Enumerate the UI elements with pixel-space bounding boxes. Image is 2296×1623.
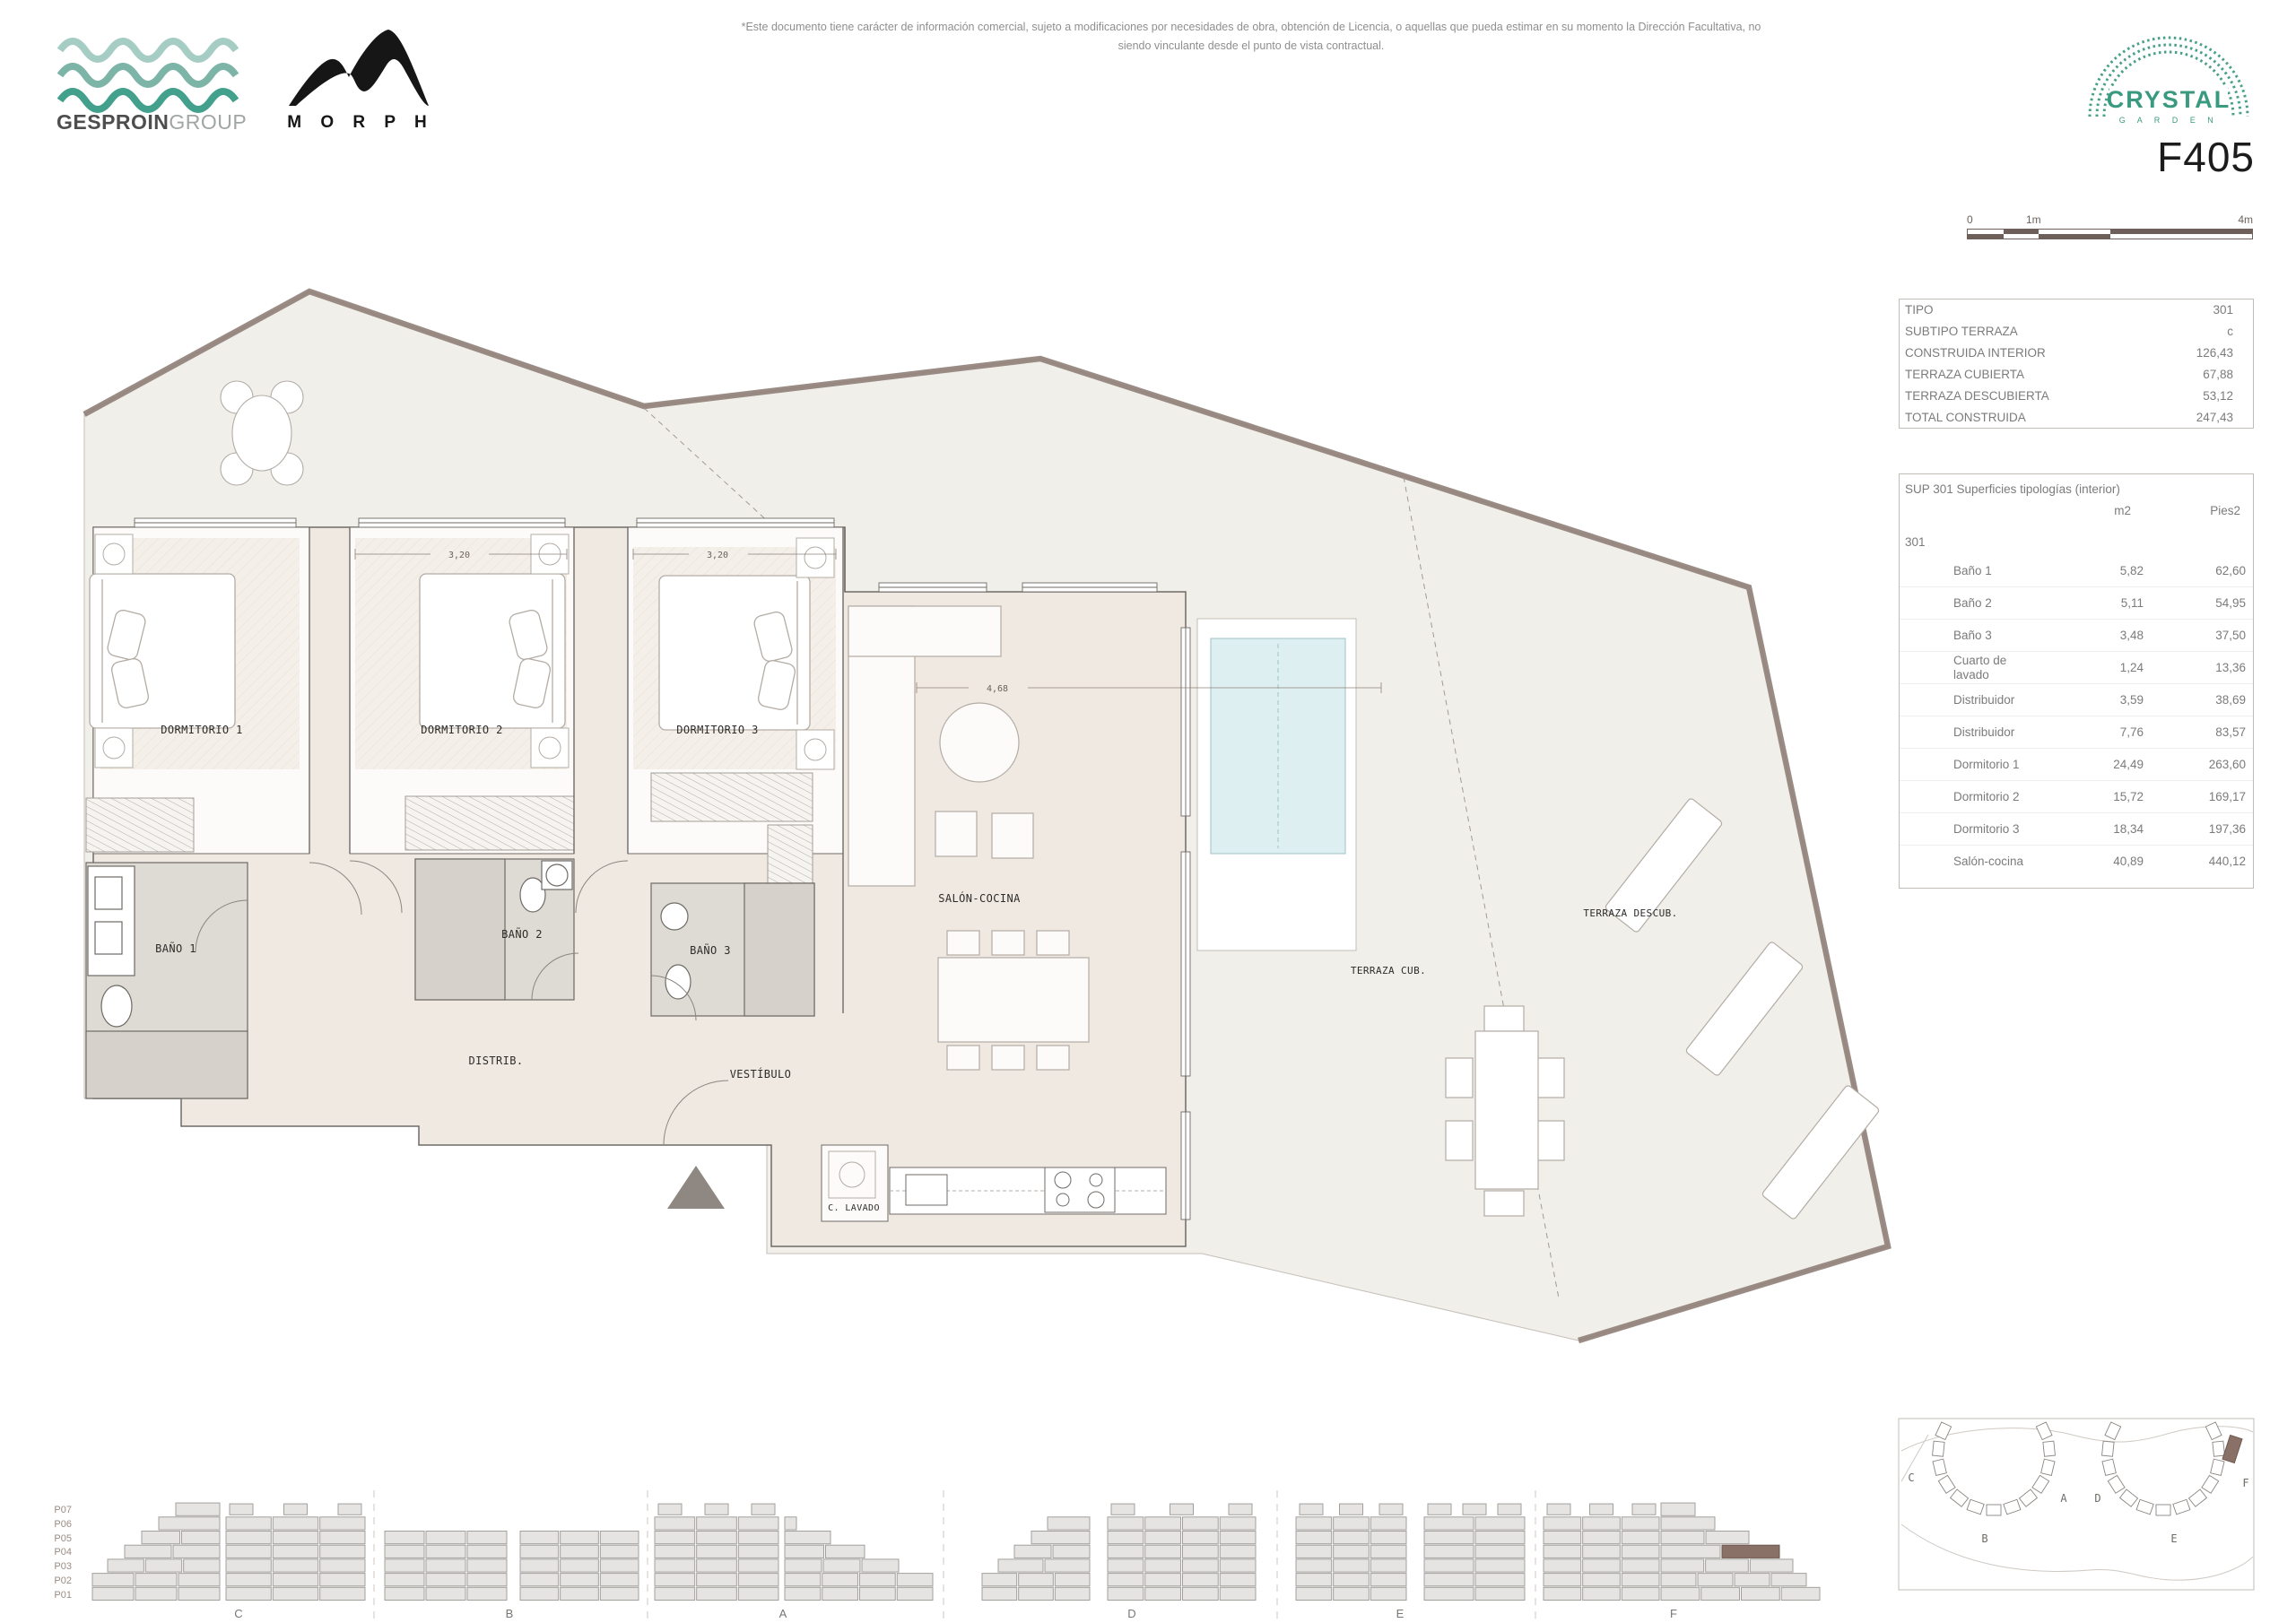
outdoor-table — [1475, 1031, 1538, 1189]
floor-label: P01 — [54, 1590, 72, 1601]
table-row: Cuarto de lavado1,2413,36 — [1900, 652, 2253, 684]
scale-label-0: 0 — [1967, 213, 1973, 226]
gesproin-wordmark: GESPROINGROUP — [57, 110, 247, 134]
round-rug — [940, 703, 1019, 782]
table-row: TIPO301 — [1900, 299, 2253, 321]
kitchen-sink-icon — [906, 1175, 947, 1205]
room-label-dormitorio-1: DORMITORIO 1 — [161, 724, 243, 736]
gesproin-wave-light — [60, 41, 236, 59]
nightstand — [531, 728, 569, 768]
table-row: TERRAZA CUBIERTA67,88 — [1900, 364, 2253, 386]
site-label-E: E — [2170, 1532, 2177, 1545]
chair — [947, 931, 979, 955]
gesproin-logo: GESPROINGROUP — [49, 16, 265, 135]
morph-logo: M O R P H — [280, 16, 441, 135]
table-row: Distribuidor7,7683,57 — [1900, 716, 2253, 749]
crystal-sub-wordmark: G A R D E N — [2119, 116, 2219, 125]
chair — [947, 1046, 979, 1070]
site-label-F: F — [2242, 1477, 2248, 1489]
table-row: Dormitorio 215,72169,17 — [1900, 781, 2253, 813]
building-elevations: P07 P06 P05 P04 P03 P02 P01 C B A D E F — [27, 1484, 1848, 1620]
scale-bar-graphic — [1967, 229, 2253, 239]
table-row: Dormitorio 318,34197,36 — [1900, 813, 2253, 846]
chair — [1537, 1121, 1564, 1160]
floor-plan: 3,20 3,20 4,68 DORMITORIO 1 DORMITORIO 2… — [36, 269, 1919, 1394]
dining-table — [938, 958, 1089, 1042]
table-row: Distribuidor3,5938,69 — [1900, 684, 2253, 716]
shower-bano-1 — [86, 1031, 248, 1098]
chair — [992, 1046, 1024, 1070]
wardrobe-dormitorio-1 — [86, 798, 194, 852]
table-row: CONSTRUIDA INTERIOR126,43 — [1900, 343, 2253, 364]
dimension-label: 4,68 — [987, 684, 1008, 694]
surfaces-table: SUP 301 Superficies tipologías (interior… — [1899, 473, 2254, 889]
table-row: Baño 15,8262,60 — [1900, 555, 2253, 587]
shower-bano-3 — [744, 883, 814, 1016]
entrance-arrow-icon — [667, 1166, 725, 1209]
pouf — [992, 813, 1033, 858]
room-label-dormitorio-2: DORMITORIO 2 — [421, 724, 503, 736]
gesproin-wave-mid — [60, 66, 236, 84]
elevation-blocks — [92, 1503, 1820, 1600]
room-label-dormitorio-3: DORMITORIO 3 — [676, 724, 759, 736]
table-row: Baño 33,4837,50 — [1900, 620, 2253, 652]
nightstand — [95, 534, 133, 574]
surfaces-header: m2 Pies2 — [1900, 498, 2253, 525]
label-terraza-cub: TERRAZA CUB. — [1351, 965, 1426, 976]
chair — [1446, 1058, 1473, 1098]
sink-icon — [661, 903, 688, 930]
chair — [1537, 1058, 1564, 1098]
morph-mountain-icon — [289, 30, 429, 106]
room-label-bano-1: BAÑO 1 — [155, 942, 196, 955]
col-pies2: Pies2 — [2147, 498, 2246, 525]
room-label-bano-3: BAÑO 3 — [690, 943, 731, 957]
room-label-bano-2: BAÑO 2 — [501, 927, 543, 941]
scale-label-4m: 4m — [2238, 213, 2253, 226]
hob-icon — [1045, 1167, 1115, 1212]
building-label-A: A — [779, 1607, 787, 1620]
summary-table: TIPO301 SUBTIPO TERRAZAc CONSTRUIDA INTE… — [1899, 299, 2254, 429]
chair — [1484, 1006, 1524, 1031]
dimension-label: 3,20 — [448, 551, 470, 560]
site-plan-frame — [1899, 1419, 2254, 1590]
site-label-C: C — [1908, 1471, 1914, 1484]
label-terraza-descub: TERRAZA DESCUB. — [1583, 907, 1677, 919]
morph-wordmark: M O R P H — [287, 113, 434, 132]
crystal-wordmark: CRYSTAL — [2107, 86, 2231, 113]
disclaimer-line2: siendo vinculante desde el punto de vist… — [628, 37, 1874, 56]
room-label-salon: SALÓN-COCINA — [938, 891, 1021, 905]
chair — [1037, 1046, 1069, 1070]
chair — [1037, 931, 1069, 955]
crystal-garden-logo: CRYSTAL G A R D E N — [2079, 11, 2258, 145]
surfaces-group: 301 — [1900, 525, 2253, 555]
building-label-B: B — [506, 1607, 514, 1620]
gesproin-wave-dark — [60, 91, 236, 109]
pouf — [935, 811, 977, 856]
scale-label-1m: 1m — [2026, 213, 2041, 226]
table-row: Baño 25,1154,95 — [1900, 587, 2253, 620]
surfaces-title: SUP 301 Superficies tipologías (interior… — [1900, 474, 2253, 498]
toilet-icon — [101, 985, 132, 1027]
floor-label: P03 — [54, 1561, 72, 1572]
building-label-C: C — [234, 1607, 242, 1620]
terrace-round-table — [232, 395, 291, 471]
building-label-E: E — [1396, 1607, 1405, 1620]
room-label-distribuidor: DISTRIB. — [469, 1055, 524, 1067]
wardrobe-dormitorio-3 — [651, 773, 813, 821]
disclaimer: *Este documento tiene carácter de inform… — [628, 18, 1874, 56]
chair — [1446, 1121, 1473, 1160]
disclaimer-line1: *Este documento tiene carácter de inform… — [628, 18, 1874, 37]
table-row: TERRAZA DESCUBIERTA53,12 — [1900, 386, 2253, 407]
floor-label: P06 — [54, 1519, 72, 1530]
floor-label: P04 — [54, 1547, 72, 1558]
col-m2: m2 — [2071, 498, 2147, 525]
site-plan: C B A D E F — [1894, 1415, 2257, 1594]
shower-bano-2 — [415, 859, 505, 1000]
dimension-label: 3,20 — [707, 551, 728, 560]
nightstand — [796, 538, 834, 577]
room-label-lavado: C. LAVADO — [828, 1203, 880, 1213]
floor-label: P07 — [54, 1505, 72, 1515]
table-row: TOTAL CONSTRUIDA247,43 — [1900, 407, 2253, 429]
table-row: Dormitorio 124,49263,60 — [1900, 749, 2253, 781]
chair — [992, 931, 1024, 955]
building-label-D: D — [1127, 1607, 1135, 1620]
chair — [1484, 1191, 1524, 1216]
sink-icon — [546, 864, 568, 886]
unit-code: F405 — [2054, 133, 2255, 181]
scale-bar: 0 1m 4m — [1967, 213, 2253, 239]
nightstand — [796, 730, 834, 769]
building-label-F: F — [1670, 1607, 1677, 1620]
site-label-A: A — [2060, 1492, 2067, 1505]
sofa-chaise — [848, 606, 1001, 656]
table-row: Salón-cocina40,89440,12 — [1900, 846, 2253, 877]
wardrobe-dormitorio-2 — [405, 796, 574, 850]
room-label-vestibulo: VESTÍBULO — [730, 1067, 792, 1081]
floor-label: P05 — [54, 1533, 72, 1544]
nightstand — [95, 728, 133, 768]
site-label-B: B — [1981, 1532, 1987, 1545]
table-row: SUBTIPO TERRAZAc — [1900, 321, 2253, 343]
site-label-D: D — [2094, 1492, 2100, 1505]
floor-label: P02 — [54, 1575, 72, 1586]
